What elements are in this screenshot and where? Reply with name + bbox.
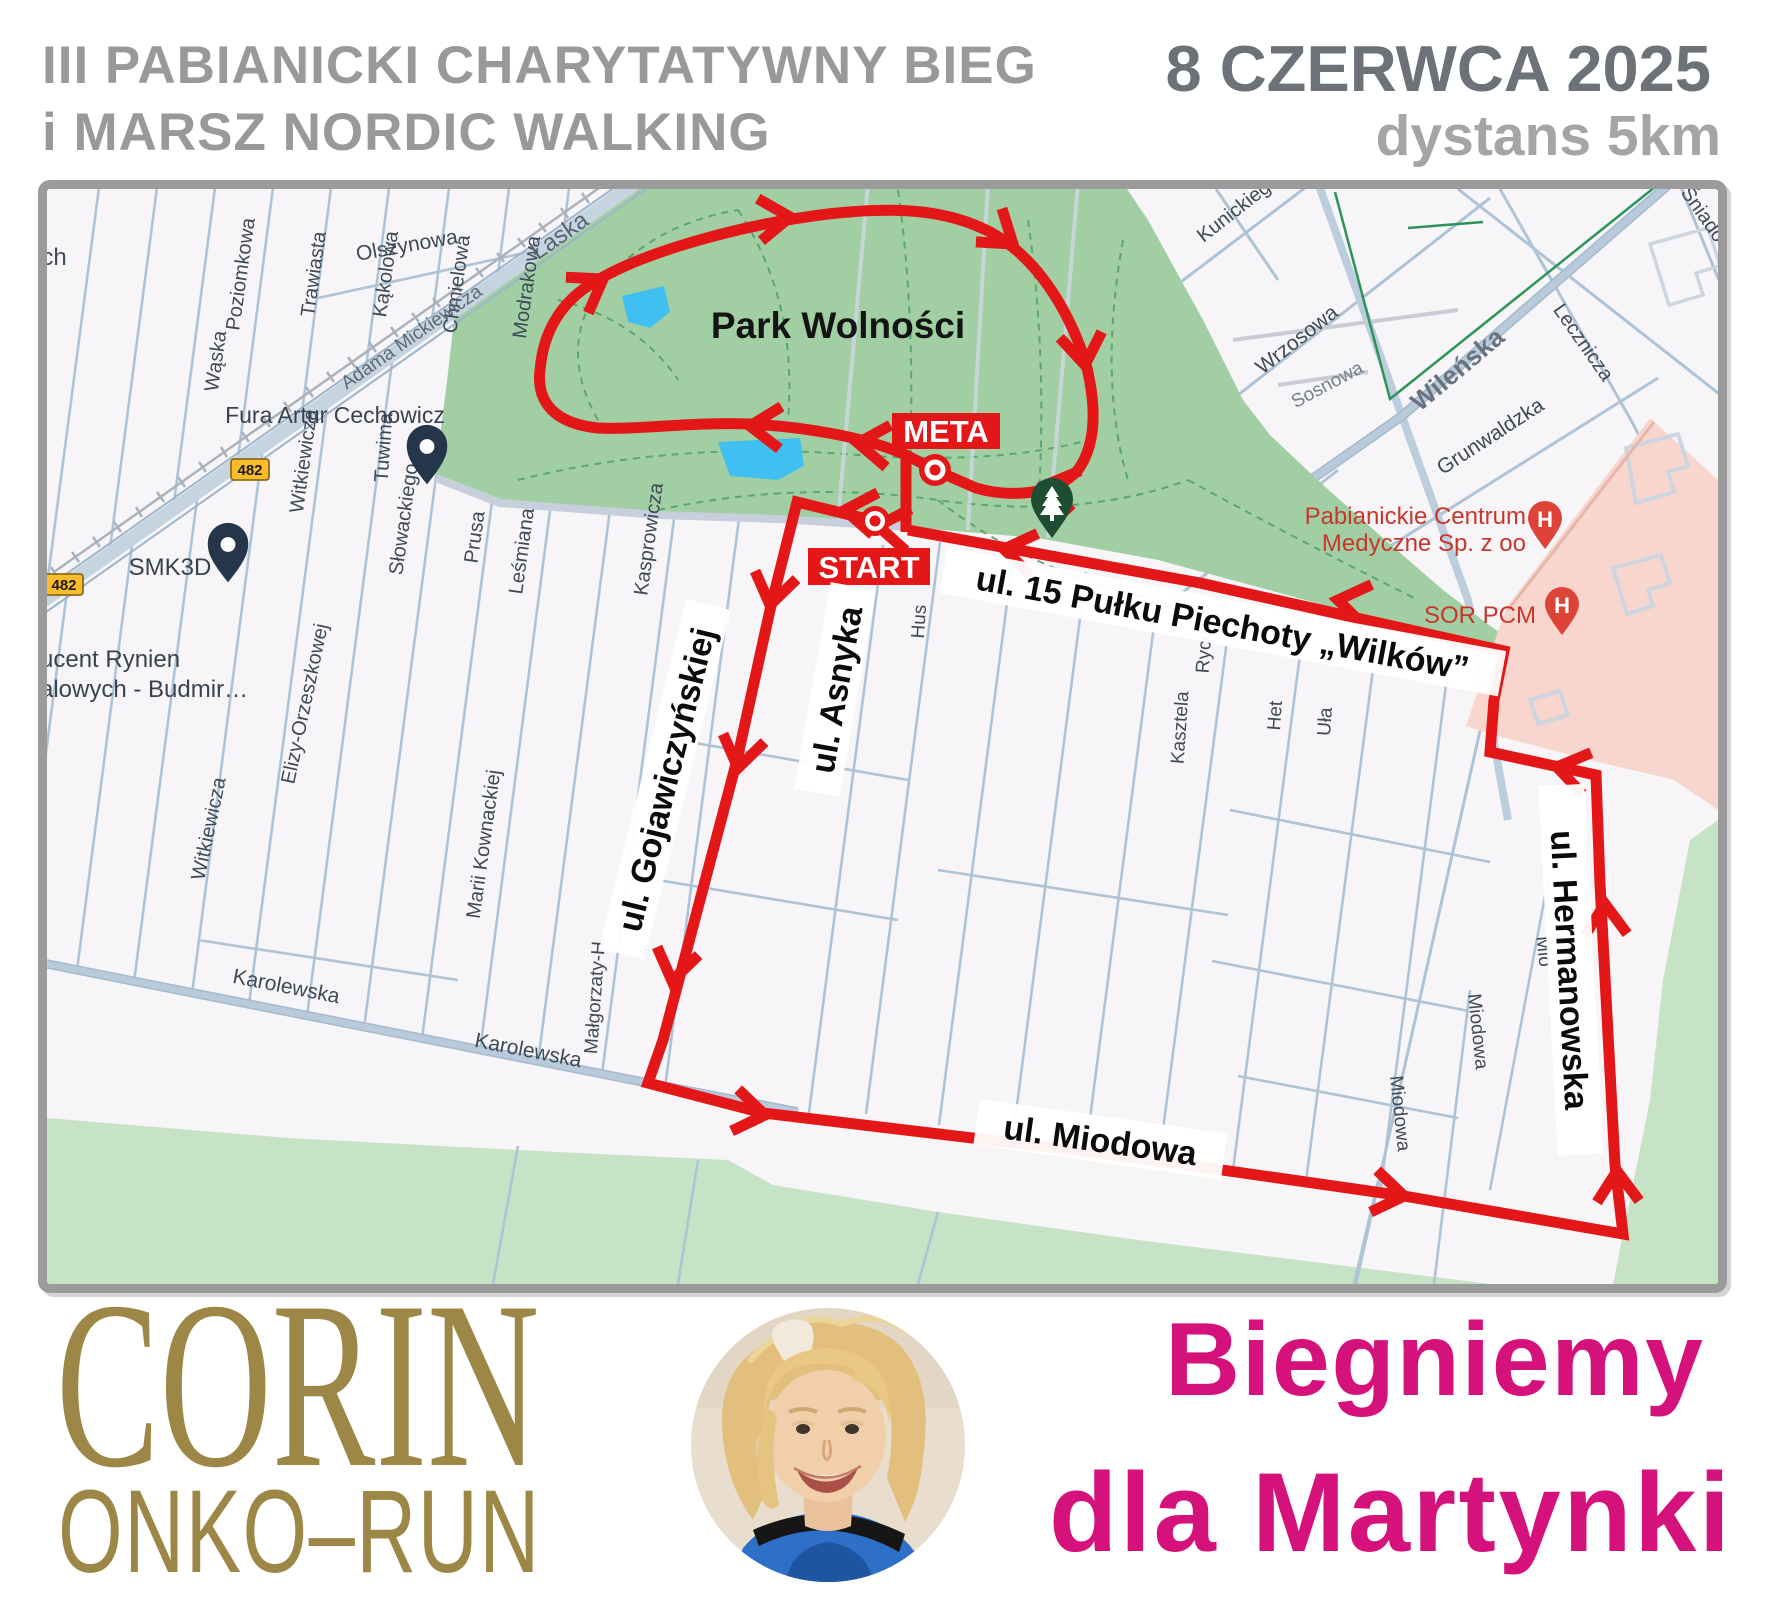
svg-text:H: H <box>1537 507 1553 532</box>
svg-text:ucent Rynien: ucent Rynien <box>47 646 180 673</box>
svg-text:482: 482 <box>237 462 262 479</box>
svg-text:SOR PCM: SOR PCM <box>1424 602 1536 629</box>
svg-text:Fura Artur Cechowicz: Fura Artur Cechowicz <box>225 402 445 428</box>
svg-text:Park Wolności: Park Wolności <box>711 305 965 346</box>
svg-text:Het: Het <box>1264 699 1287 731</box>
svg-text:Medyczne Sp. z oo: Medyczne Sp. z oo <box>1322 530 1526 557</box>
svg-text:482: 482 <box>51 577 76 594</box>
svg-text:START: START <box>818 550 919 585</box>
svg-text:Pabianickie Centrum: Pabianickie Centrum <box>1305 503 1526 530</box>
svg-text:ych: ych <box>47 244 67 271</box>
svg-text:Hus: Hus <box>908 604 931 639</box>
svg-text:Uła: Uła <box>1314 706 1337 736</box>
svg-text:SMK3D: SMK3D <box>129 554 212 581</box>
svg-text:H: H <box>1554 593 1570 618</box>
svg-text:alowych - Budmir…: alowych - Budmir… <box>47 676 248 703</box>
svg-text:META: META <box>903 414 989 449</box>
